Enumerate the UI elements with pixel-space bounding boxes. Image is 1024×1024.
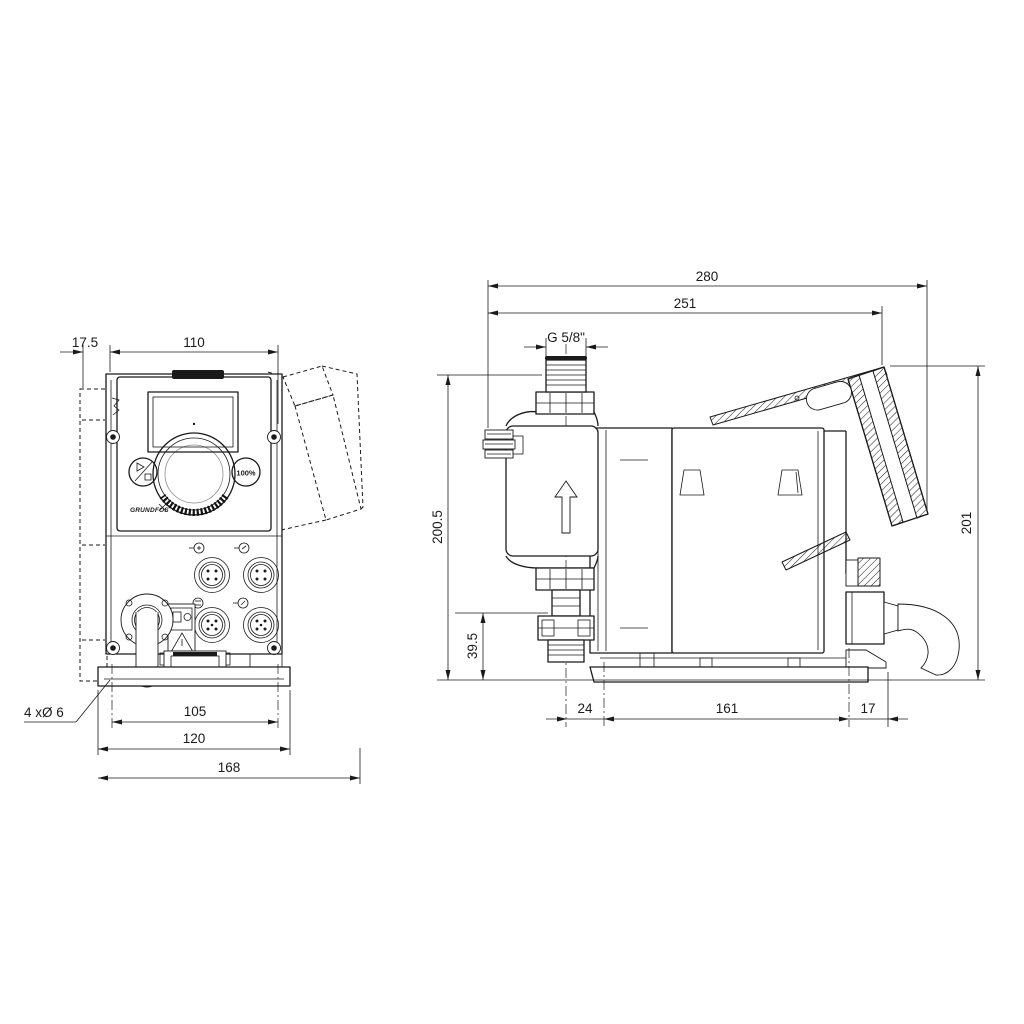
- dim-overall-width: 168: [98, 748, 360, 784]
- wall-plate-phantom: [80, 389, 107, 681]
- suction-thread: [548, 640, 584, 662]
- percent-button-label: 100%: [236, 469, 256, 478]
- svg-text:105: 105: [184, 704, 207, 719]
- mounting-holes-callout: 4 xØ 6: [24, 680, 110, 722]
- svg-text:251: 251: [674, 296, 697, 311]
- screw-icon: [107, 642, 120, 655]
- dim-plate-offset: 17.5: [60, 335, 110, 388]
- screw-icon: [107, 431, 120, 444]
- svg-text:120: 120: [183, 731, 206, 746]
- mains-cable: [898, 604, 959, 675]
- svg-text:200.5: 200.5: [430, 510, 445, 544]
- svg-text:280: 280: [696, 269, 719, 284]
- technical-drawing-page: 100% GRUNDFOS: [0, 0, 1024, 1024]
- dim-bracket-width: 120: [98, 690, 290, 755]
- dim-hole-pitch-side: 161: [604, 701, 849, 719]
- top-tab: [172, 370, 224, 379]
- dim-suction-height: 39.5: [455, 613, 548, 680]
- cover-handle-recess: [804, 379, 854, 413]
- dimensional-drawing: 100% GRUNDFOS: [0, 0, 1024, 1024]
- svg-text:17: 17: [860, 701, 875, 716]
- svg-text:G 5/8": G 5/8": [547, 330, 585, 345]
- front-view: 100% GRUNDFOS: [24, 335, 363, 784]
- dim-hole-pitch-front: 105: [112, 704, 278, 722]
- svg-text:168: 168: [218, 760, 241, 775]
- cable-gland-thread: [858, 558, 880, 586]
- svg-text:39.5: 39.5: [465, 633, 480, 659]
- screw-icon: [268, 431, 281, 444]
- dim-front-offset: 24: [546, 701, 593, 719]
- svg-text:24: 24: [577, 701, 593, 716]
- pump-housing: [590, 428, 846, 653]
- svg-text:4 xØ 6: 4 xØ 6: [24, 705, 64, 720]
- dosing-head: [483, 356, 598, 662]
- svg-text:17.5: 17.5: [72, 335, 98, 350]
- side-view: 280 251 G 5/8" 200.5: [430, 269, 985, 727]
- screw-icon: [268, 642, 281, 655]
- svg-text:161: 161: [716, 701, 739, 716]
- svg-text:110: 110: [183, 335, 205, 350]
- svg-text:201: 201: [959, 512, 974, 535]
